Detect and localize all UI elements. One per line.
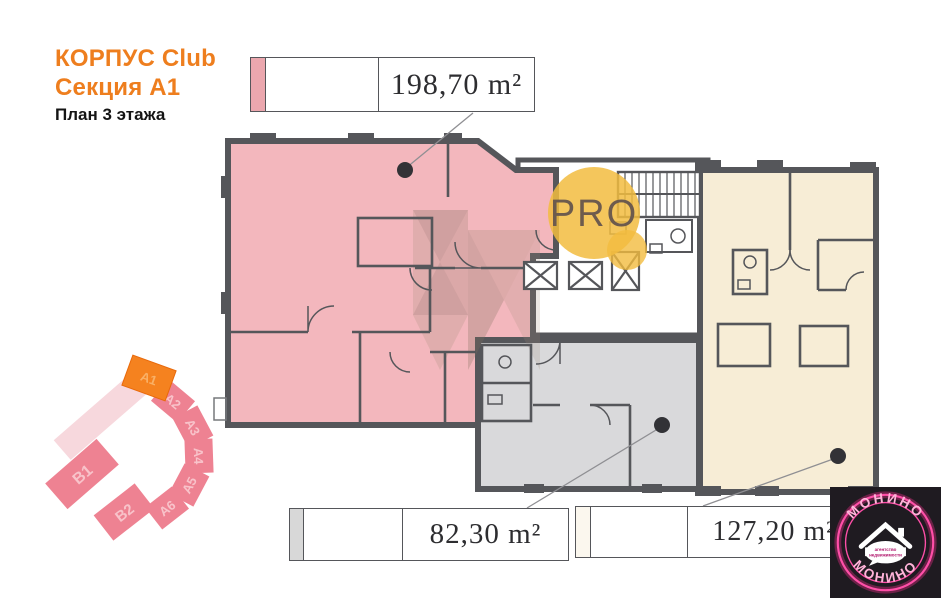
label-spacer	[266, 58, 379, 111]
area-label-box-127: 127,20 m²	[575, 506, 861, 558]
agency-logo: МОНИНО МОНИНО агентство недвижимости	[830, 487, 941, 598]
gray-swatch	[290, 509, 304, 560]
area-label-box-82: 82,30 m²	[289, 508, 569, 561]
logo-speech-bubble: агентство недвижимости	[865, 541, 906, 566]
minimap-label-a4: A4	[191, 447, 207, 465]
area-value-82: 82,30 m²	[403, 509, 568, 560]
area-value-198: 198,70 m²	[379, 58, 534, 111]
balcony-detail	[214, 398, 226, 420]
section-title: Секция А1	[55, 73, 216, 102]
label-spacer	[304, 509, 403, 560]
page-header: КОРПУС Club Секция А1 План 3 этажа	[55, 44, 216, 125]
beige-swatch	[576, 507, 591, 557]
building-title: КОРПУС Club	[55, 44, 216, 73]
floorplan-page: PRO B1 B2	[0, 0, 941, 600]
agency-logo-badge: МОНИНО МОНИНО агентство недвижимости	[830, 487, 941, 598]
logo-tagline-1: агентство	[875, 547, 897, 552]
pink-swatch	[251, 58, 266, 111]
minimap-section-b2: B2	[94, 483, 155, 540]
label-spacer	[591, 507, 688, 557]
apartment-region-beige	[700, 170, 876, 492]
floor-subtitle: План 3 этажа	[55, 105, 216, 126]
area-label-box-198: 198,70 m²	[250, 57, 535, 112]
pro-watermark-text: PRO	[550, 193, 638, 235]
logo-tagline-2: недвижимости	[869, 553, 902, 558]
building-minimap: B1 B2 A6 A5 A4 A3	[45, 355, 213, 541]
